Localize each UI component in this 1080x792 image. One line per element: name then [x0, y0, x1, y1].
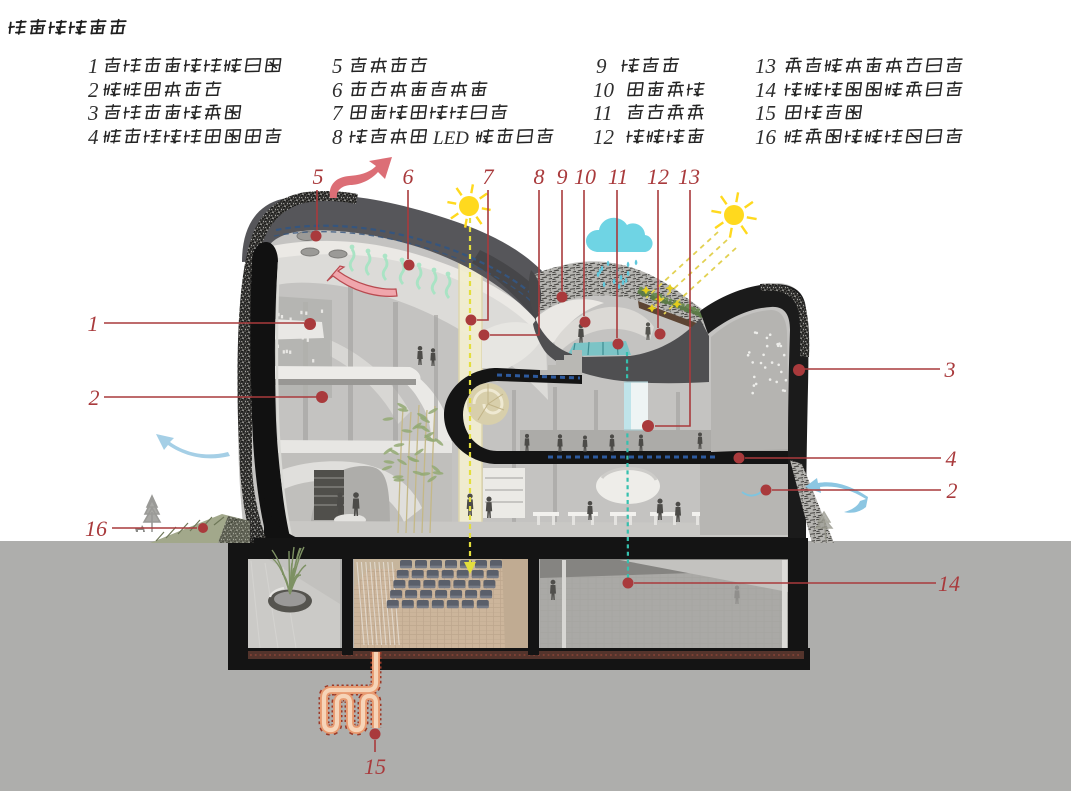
svg-text:2: 2: [947, 478, 958, 503]
svg-text:9: 9: [557, 164, 568, 189]
svg-text:11: 11: [608, 164, 628, 189]
svg-text:15: 15: [364, 754, 386, 779]
svg-text:4: 4: [88, 125, 99, 149]
svg-text:10: 10: [574, 164, 596, 189]
svg-text:14: 14: [938, 571, 960, 596]
svg-text:1: 1: [88, 311, 99, 336]
svg-text:2: 2: [89, 385, 100, 410]
svg-text:1: 1: [88, 54, 99, 78]
svg-text:12: 12: [593, 125, 615, 149]
svg-text:14: 14: [755, 78, 777, 102]
svg-text:6: 6: [403, 164, 414, 189]
svg-text:4: 4: [946, 446, 957, 471]
svg-text:16: 16: [85, 516, 107, 541]
svg-text:3: 3: [87, 101, 99, 125]
svg-text:3: 3: [944, 357, 956, 382]
svg-text:5: 5: [313, 164, 324, 189]
svg-text:7: 7: [332, 101, 344, 125]
svg-text:6: 6: [332, 78, 343, 102]
svg-text:8: 8: [332, 125, 343, 149]
svg-text:16: 16: [755, 125, 777, 149]
svg-text:12: 12: [647, 164, 669, 189]
svg-text:8: 8: [534, 164, 545, 189]
svg-text:5: 5: [332, 54, 343, 78]
svg-text:2: 2: [88, 78, 99, 102]
svg-text:LED: LED: [432, 128, 469, 149]
svg-text:13: 13: [678, 164, 700, 189]
svg-text:13: 13: [755, 54, 776, 78]
svg-text:7: 7: [483, 164, 495, 189]
svg-text:15: 15: [755, 101, 776, 125]
svg-text:11: 11: [593, 101, 612, 125]
svg-text:10: 10: [593, 78, 615, 102]
svg-text:9: 9: [596, 54, 607, 78]
